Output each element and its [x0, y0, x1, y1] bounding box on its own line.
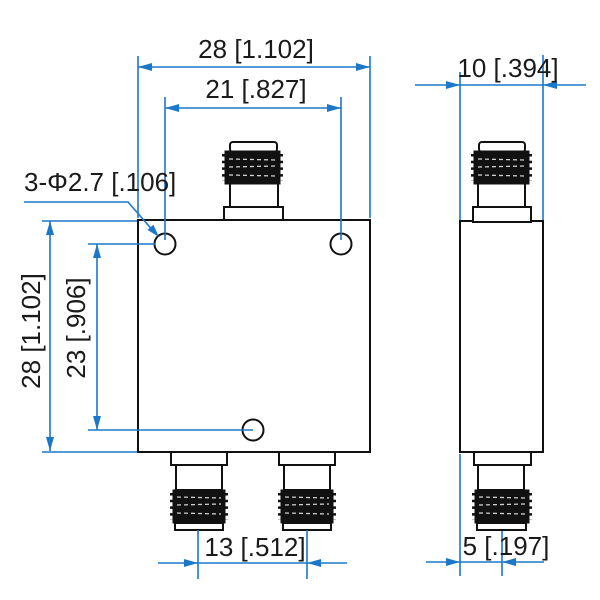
hole-callout: 3-Φ2.7 [.106] — [24, 167, 176, 237]
dimension-port-spacing: 13 [.512] — [158, 530, 347, 579]
front-bottom-left-connector — [171, 452, 227, 530]
dimension-text: 23 [.906] — [61, 277, 91, 378]
connector-end-rim — [477, 523, 526, 530]
arrowhead — [93, 244, 101, 258]
dimension-text: 10 [.394] — [457, 53, 558, 83]
connector-barrel — [478, 183, 525, 209]
arrowhead — [327, 104, 341, 112]
thread-block — [225, 151, 280, 184]
connector-end-rim — [175, 523, 223, 530]
thread-block — [281, 490, 333, 523]
thread-block — [173, 490, 225, 523]
arrowhead — [138, 63, 152, 71]
side-body-outline — [460, 221, 543, 452]
side-view — [460, 142, 543, 530]
leader-line — [24, 202, 155, 233]
arrowhead — [46, 437, 54, 451]
connector-barrel — [176, 465, 222, 490]
dimension-text: 21 [.827] — [205, 74, 306, 104]
arrowhead — [446, 558, 460, 566]
connector-flange — [279, 452, 335, 465]
arrowhead — [46, 221, 54, 235]
callout-text: 3-Φ2.7 [.106] — [24, 167, 176, 197]
dimension-text: 28 [1.102] — [198, 34, 314, 64]
connector-flange — [474, 452, 531, 465]
connector-thread — [173, 490, 225, 523]
connector-flange — [224, 207, 283, 220]
arrowhead — [93, 416, 101, 430]
connector-barrel — [230, 183, 278, 209]
side-bottom-connector — [474, 452, 531, 530]
dimension-text: 13 [.512] — [204, 532, 305, 562]
arrowhead — [307, 559, 321, 567]
connector-barrel — [284, 465, 330, 490]
connector-thread — [225, 151, 280, 184]
connector-barrel — [478, 465, 524, 490]
dimension-text: 28 [1.102] — [16, 273, 46, 389]
front-bottom-right-connector — [279, 452, 335, 530]
arrowhead — [356, 63, 370, 71]
connector-thread — [474, 151, 529, 184]
front-body-outline — [138, 220, 370, 452]
arrowhead — [165, 104, 179, 112]
technical-drawing: 28 [1.102] 21 [.827] 10 [.394] 3-Φ2.7 [.… — [0, 0, 600, 600]
drawing-canvas: 28 [1.102] 21 [.827] 10 [.394] 3-Φ2.7 [.… — [0, 0, 600, 600]
connector-thread — [475, 490, 529, 523]
connector-thread — [281, 490, 333, 523]
side-top-connector — [473, 142, 531, 222]
dimension-text: 5 [.197] — [463, 531, 550, 561]
thread-block — [474, 151, 529, 184]
front-top-connector — [224, 142, 283, 220]
arrowhead — [184, 559, 198, 567]
thread-block — [475, 490, 529, 523]
connector-flange — [473, 207, 531, 222]
front-view — [138, 142, 370, 530]
connector-flange — [171, 452, 227, 465]
connector-end-rim — [283, 523, 331, 530]
